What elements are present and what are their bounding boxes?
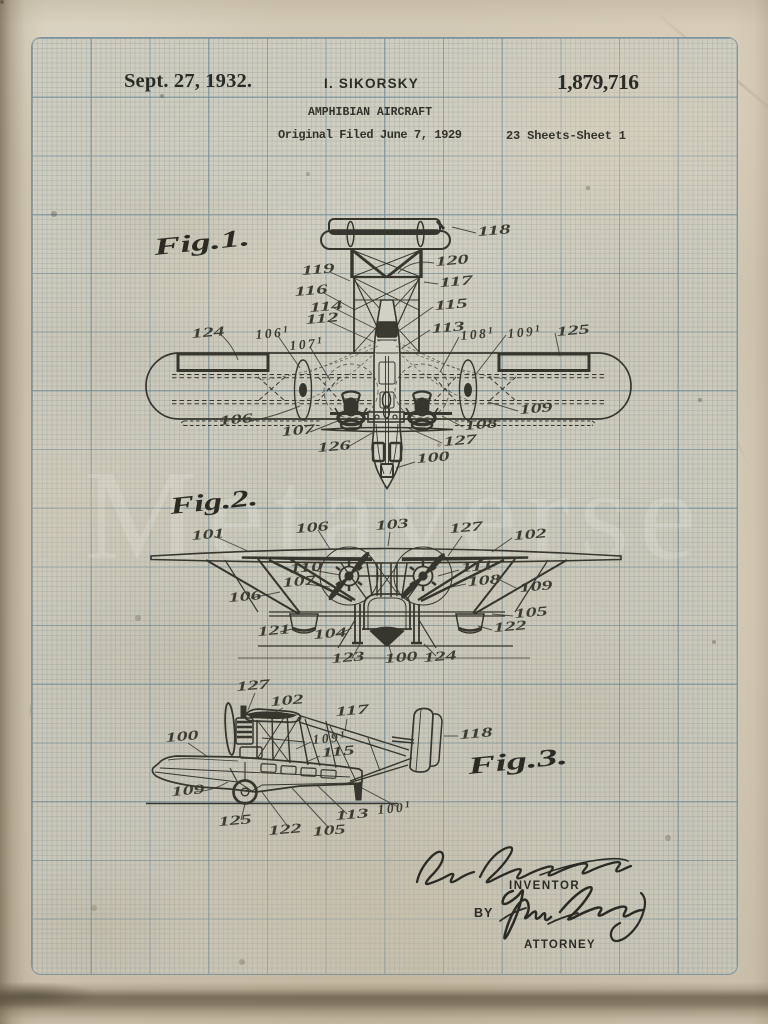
svg-text:1,879,716: 1,879,716 [557, 70, 639, 94]
svg-text:BY: BY [474, 906, 493, 920]
svg-text:1071: 1071 [289, 335, 325, 353]
svg-text:Fig.3.: Fig.3. [465, 744, 569, 780]
svg-text:117: 117 [335, 701, 371, 719]
svg-text:127: 127 [236, 676, 272, 694]
svg-text:116: 116 [294, 281, 329, 299]
svg-text:126: 126 [317, 437, 352, 455]
svg-text:ATTORNEY: ATTORNEY [524, 939, 596, 951]
svg-text:106: 106 [295, 518, 330, 536]
svg-text:1001: 1001 [377, 799, 413, 817]
svg-text:I. SIKORSKY: I. SIKORSKY [324, 76, 419, 91]
svg-text:102: 102 [513, 525, 548, 543]
svg-text:120: 120 [435, 251, 470, 269]
svg-text:1061: 1061 [255, 324, 291, 342]
svg-text:123: 123 [331, 648, 366, 666]
svg-text:117: 117 [439, 272, 475, 290]
svg-text:105: 105 [312, 821, 347, 839]
svg-text:109: 109 [519, 577, 554, 595]
svg-text:118: 118 [477, 221, 512, 239]
svg-text:124: 124 [191, 323, 226, 341]
svg-text:1091: 1091 [507, 323, 543, 341]
svg-text:106: 106 [228, 587, 263, 605]
svg-text:100: 100 [384, 648, 419, 666]
svg-text:102: 102 [270, 691, 305, 709]
svg-text:AMPHIBIAN AIRCRAFT: AMPHIBIAN AIRCRAFT [308, 106, 432, 119]
svg-text:118: 118 [459, 724, 494, 742]
svg-text:108: 108 [467, 571, 502, 589]
svg-text:125: 125 [218, 811, 253, 829]
svg-text:1081: 1081 [460, 325, 496, 343]
svg-text:103: 103 [375, 515, 410, 533]
svg-text:115: 115 [434, 295, 469, 313]
svg-text:124: 124 [423, 647, 458, 665]
svg-text:107: 107 [281, 421, 317, 439]
svg-text:109: 109 [519, 399, 554, 417]
svg-text:INVENTOR: INVENTOR [509, 880, 580, 892]
svg-text:Fig.1.: Fig.1. [151, 225, 251, 261]
svg-text:115: 115 [321, 742, 356, 760]
svg-text:119: 119 [301, 260, 336, 278]
svg-text:108: 108 [464, 415, 499, 433]
svg-text:122: 122 [493, 617, 528, 635]
svg-text:127: 127 [449, 518, 485, 536]
svg-text:104: 104 [313, 624, 348, 642]
svg-text:109: 109 [171, 781, 206, 799]
svg-text:Sept. 27, 1932.: Sept. 27, 1932. [124, 70, 252, 92]
svg-text:107: 107 [282, 572, 318, 590]
svg-text:100: 100 [165, 727, 200, 745]
svg-text:23 Sheets-Sheet 1: 23 Sheets-Sheet 1 [506, 129, 626, 143]
svg-text:125: 125 [556, 321, 591, 339]
svg-text:100: 100 [416, 448, 451, 466]
svg-text:101: 101 [191, 525, 225, 543]
svg-text:Original Filed June 7, 1929: Original Filed June 7, 1929 [278, 128, 462, 142]
svg-text:127: 127 [443, 431, 479, 449]
svg-text:106: 106 [219, 410, 254, 428]
